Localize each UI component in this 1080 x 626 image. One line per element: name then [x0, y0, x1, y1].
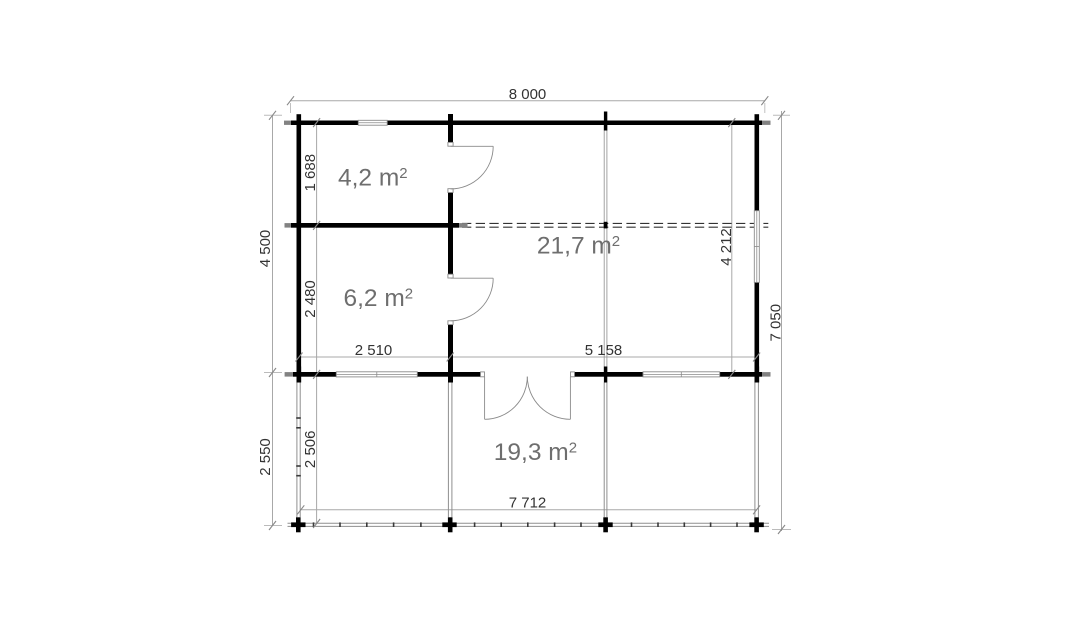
- svg-text:21,7 m2: 21,7 m2: [537, 233, 620, 260]
- svg-text:5 158: 5 158: [585, 342, 623, 359]
- svg-text:4,2 m2: 4,2 m2: [338, 165, 408, 192]
- svg-text:4 212: 4 212: [718, 228, 735, 266]
- svg-text:2 480: 2 480: [302, 280, 319, 318]
- svg-text:2 550: 2 550: [257, 438, 274, 476]
- svg-text:1 688: 1 688: [302, 154, 319, 192]
- svg-text:6,2 m2: 6,2 m2: [344, 285, 414, 312]
- svg-text:4 500: 4 500: [257, 230, 274, 268]
- svg-text:8 000: 8 000: [509, 86, 547, 103]
- svg-text:19,3 m2: 19,3 m2: [494, 439, 577, 466]
- svg-text:2 510: 2 510: [355, 342, 393, 359]
- svg-text:2 506: 2 506: [302, 431, 319, 469]
- svg-text:7 050: 7 050: [768, 304, 785, 342]
- svg-text:7 712: 7 712: [509, 495, 547, 512]
